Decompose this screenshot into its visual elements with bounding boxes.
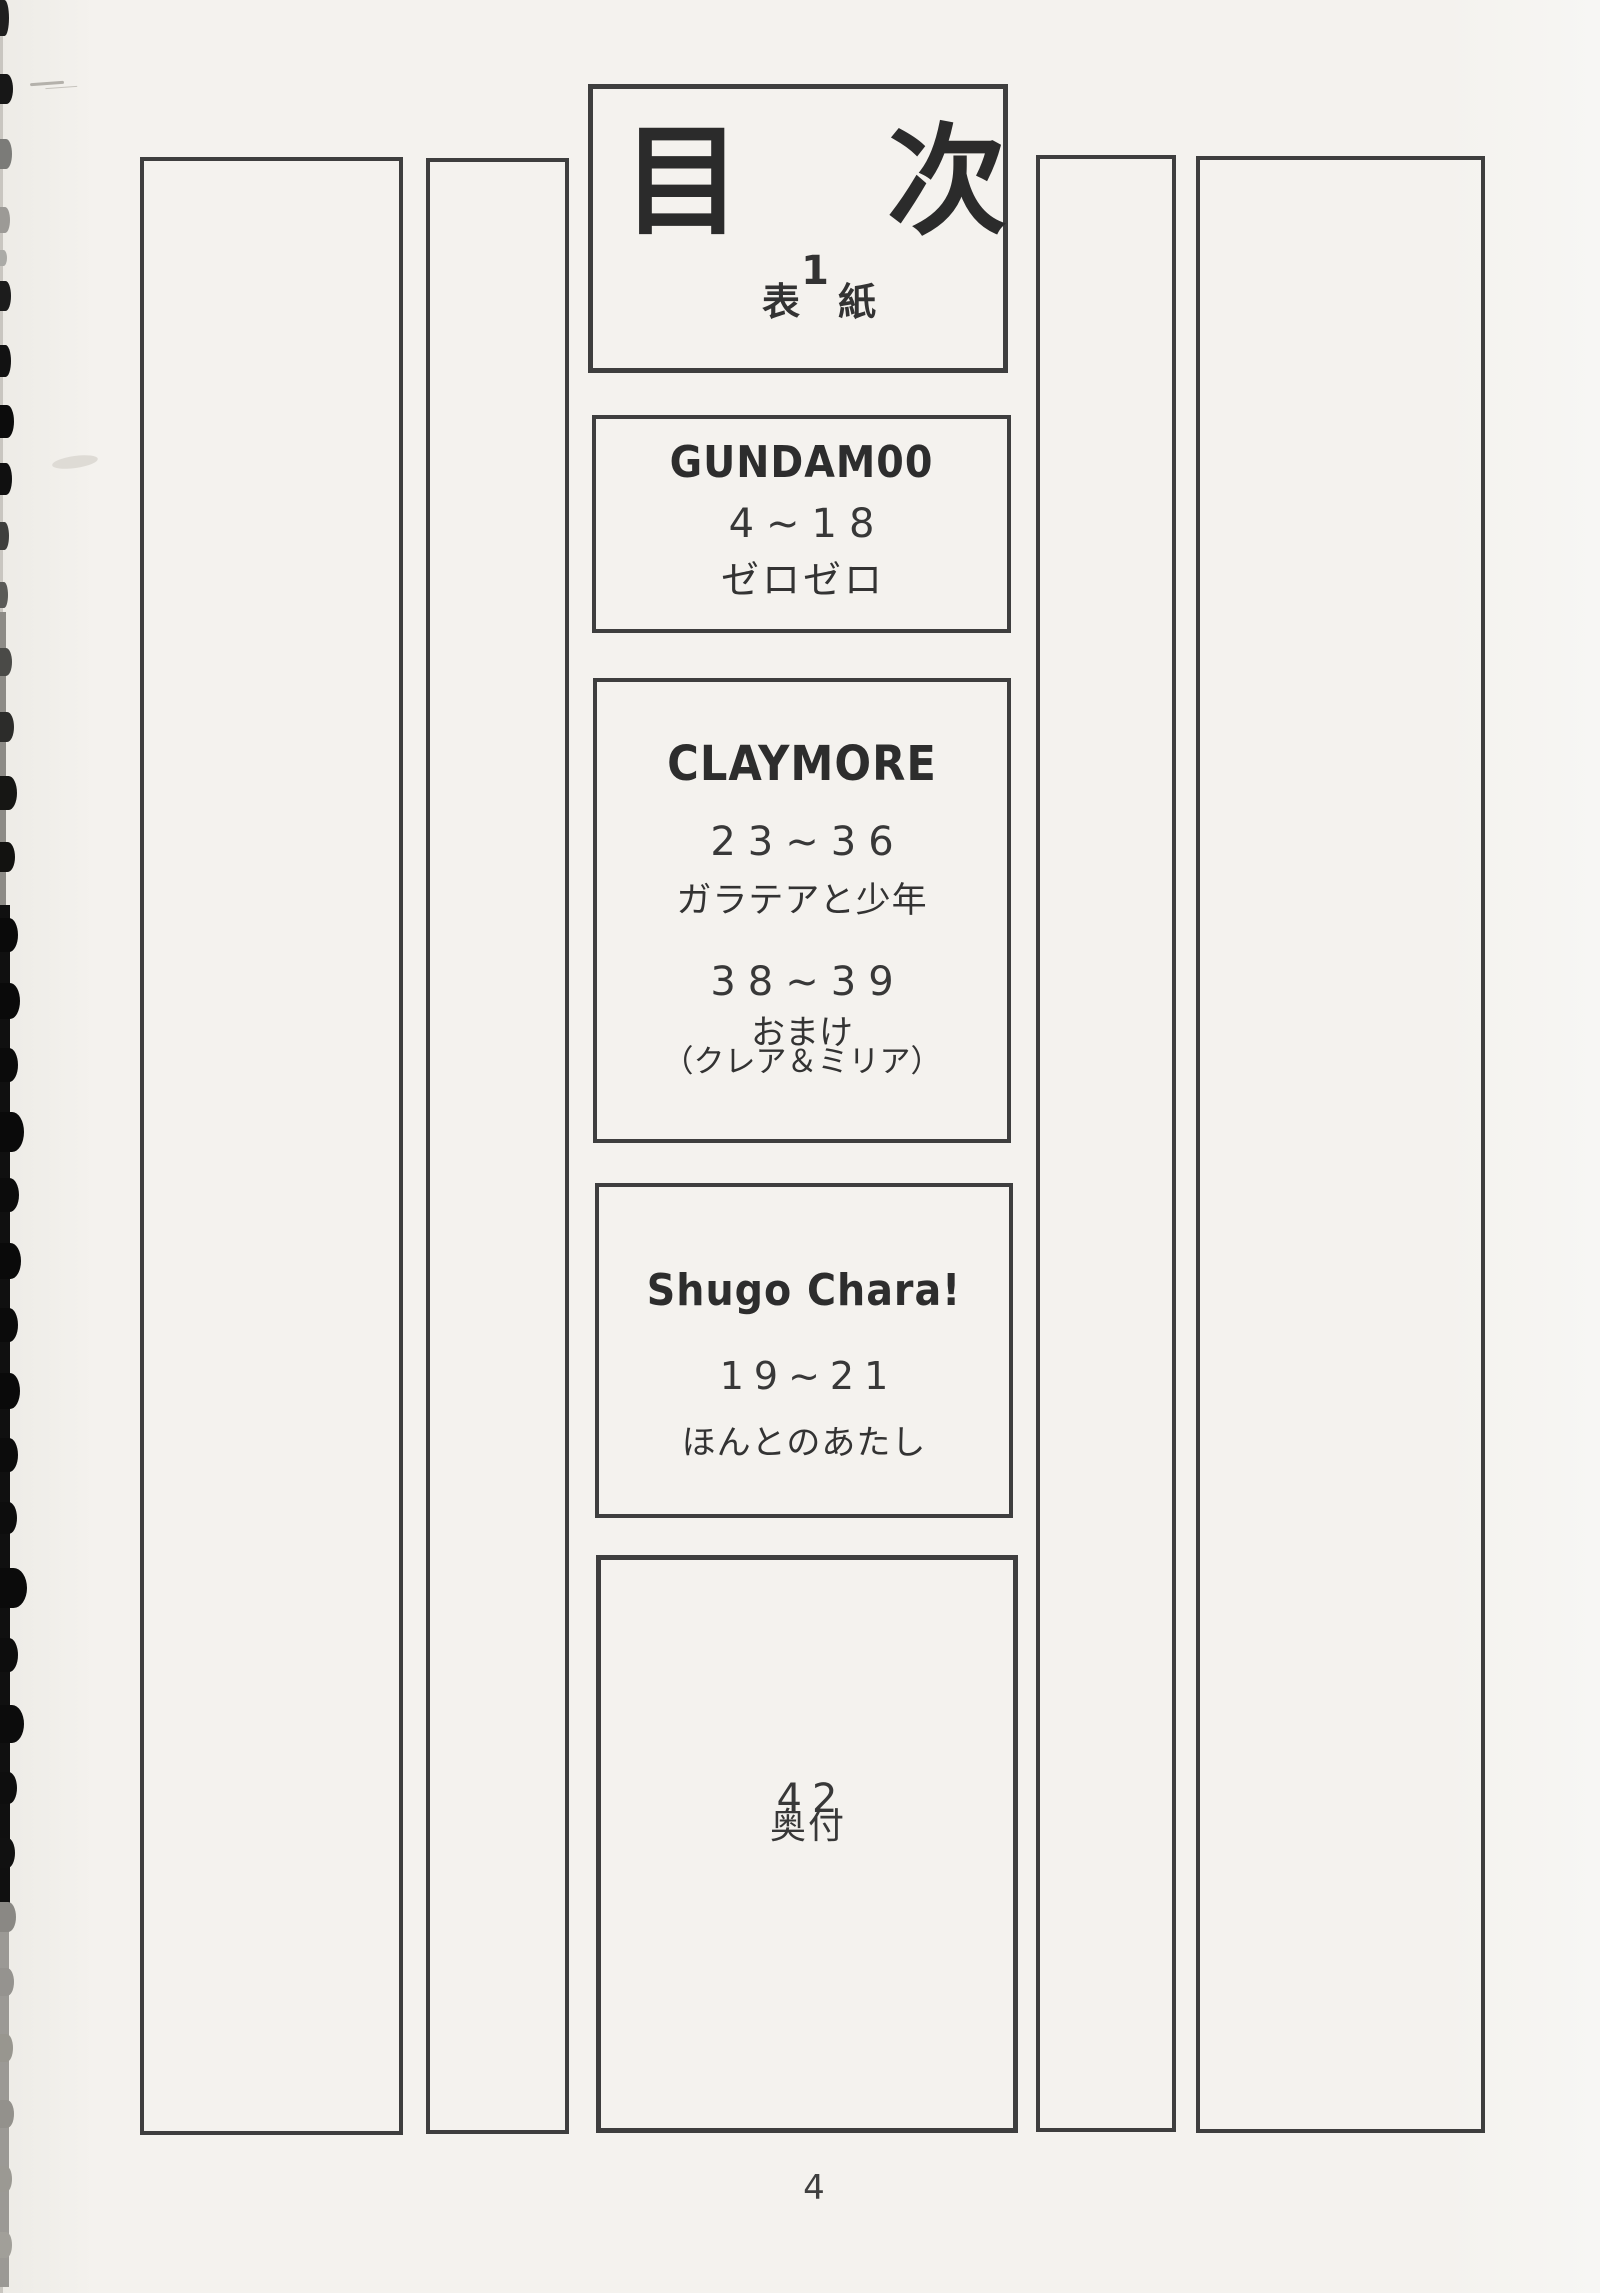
scan-edge-blob [0,1705,24,1743]
scan-edge-blob [0,2034,13,2062]
scan-edge-blob [0,281,11,311]
entry-page-range: 19~21 [599,1357,1009,1395]
scanned-toc-page: 目次 1 表紙 GUNDAM00 4~18 ゼロゼロ CLAYMORE 23~3… [0,0,1600,2293]
scan-edge-blob [0,522,9,550]
toc-entry-shugo-chara: Shugo Chara! 19~21 ほんとのあたし [595,1183,1013,1518]
scan-edge-blob [0,1178,19,1212]
scan-edge-blob [0,2100,14,2128]
scan-edge-blob [0,1308,18,1342]
entry-series-title: GUNDAM00 [596,441,1007,485]
scan-edge-blob [0,2166,12,2192]
entry-series-title: CLAYMORE [597,740,1007,788]
scan-edge-blob [0,1112,24,1152]
scan-binding-edge [0,0,40,2293]
scan-edge-blob [0,463,12,495]
toc-entry-gundam00: GUNDAM00 4~18 ゼロゼロ [592,415,1011,633]
scan-edge-blob [0,1568,27,1608]
page-number: 4 [803,2171,825,2205]
entry-series-title: Shugo Chara! [599,1269,1009,1313]
entry-bonus-page-range: 38~39 [597,962,1007,1002]
scan-edge-blob [0,1968,14,1996]
scan-edge-blob [0,1838,15,1868]
scan-edge-blob [0,1243,21,1279]
entry-story-title: ゼロゼロ [596,561,1007,599]
scan-edge-blob [0,1373,20,1409]
scan-edge-blob [0,842,15,872]
scan-edge-blob [0,0,9,36]
toc-entry-colophon: 42 奥付 [596,1555,1018,2133]
decorative-column-outer-left [140,157,403,2135]
entry-story-title: ガラテアと少年 [597,884,1007,919]
scan-edge-blob [0,1438,18,1472]
entry-page-range: 23~36 [597,822,1007,862]
scan-edge-blob [0,648,12,676]
decorative-column-inner-right [1036,155,1176,2132]
toc-title: 目次 [622,123,1152,243]
decorative-column-inner-left [426,158,569,2134]
scan-edge-blob [0,139,12,169]
toc-entry-claymore: CLAYMORE 23~36 ガラテアと少年 38~39 おまけ （クレア＆ミリ… [593,678,1011,1143]
scan-edge-blob [0,207,10,233]
scan-edge-blob [0,250,7,266]
entry-story-title: ほんとのあたし [599,1426,1009,1460]
scan-edge-blob [0,2232,12,2258]
decorative-column-outer-right [1196,156,1485,2133]
scan-edge-blob [0,582,8,608]
scan-edge-blob [0,1048,18,1082]
scan-edge-blob [0,776,17,810]
scan-edge-blob [0,1638,18,1672]
cover-label: 表紙 [762,283,914,321]
scan-edge-blob [0,74,13,104]
scan-edge-blob [0,345,11,377]
scan-edge-blob [0,405,14,438]
scan-edge-blob [0,1772,17,1804]
entry-bonus-subtitle: （クレア＆ミリア） [597,1047,1007,1078]
pencil-smudge-faint [51,453,98,471]
scan-edge-blob [0,1902,16,1932]
entry-story-title: 奥付 [601,1809,1013,1845]
scan-edge-blob [0,712,14,742]
scan-edge-blob [0,918,18,952]
scan-edge-blob [0,1502,17,1534]
entry-page-range: 4~18 [596,504,1007,544]
scan-edge-blob [0,983,20,1019]
toc-header-box: 目次 1 表紙 [588,84,1008,373]
scan-edge-strip [0,1905,9,2287]
